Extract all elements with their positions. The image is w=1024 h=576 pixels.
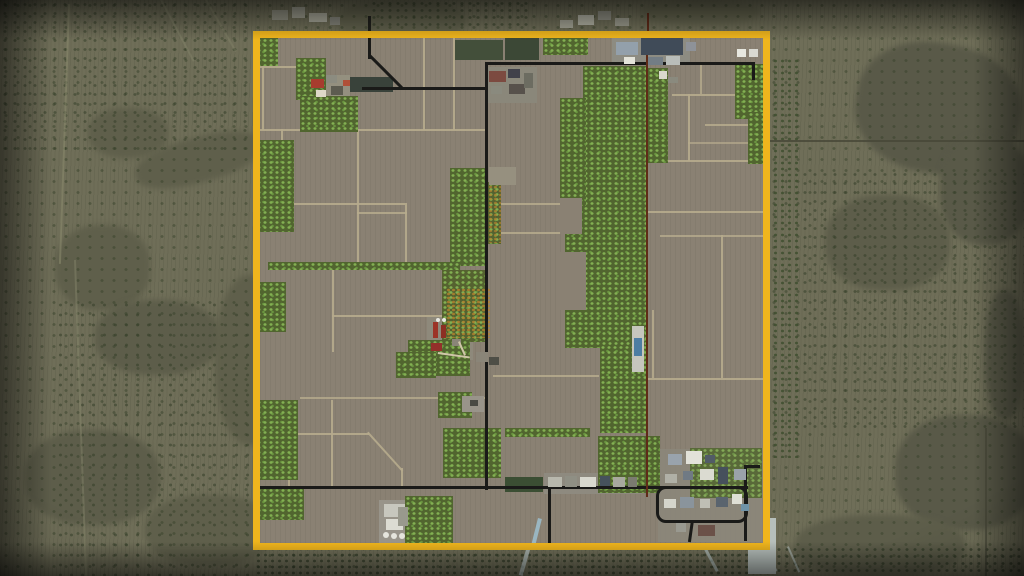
gravel-lot (489, 167, 516, 185)
railway-stub-north (647, 13, 649, 32)
field-line (260, 129, 487, 131)
forest (748, 112, 763, 164)
dark-crop-field (455, 40, 503, 60)
building (683, 471, 693, 480)
forest (443, 428, 501, 478)
forest (260, 140, 294, 232)
building (330, 17, 340, 25)
windmill (659, 71, 667, 79)
road (362, 87, 488, 90)
forest (560, 98, 586, 208)
autumn-trees (488, 185, 501, 243)
building (641, 38, 683, 55)
forest (648, 68, 668, 163)
field-line (262, 66, 264, 130)
forest (583, 66, 647, 206)
building (560, 20, 573, 28)
building (732, 494, 742, 504)
building (668, 77, 678, 83)
building (716, 497, 728, 507)
road-main-vertical (485, 62, 488, 490)
road (487, 62, 755, 65)
field-track (770, 140, 1024, 142)
building (600, 476, 610, 486)
building (524, 73, 533, 88)
silo (391, 533, 397, 539)
field-line (652, 310, 654, 378)
building (665, 474, 677, 483)
dark-crop-field (505, 38, 539, 60)
building (272, 10, 288, 20)
forest (260, 488, 304, 520)
field-line (288, 433, 369, 435)
forest (300, 96, 358, 132)
field-line (283, 203, 405, 205)
building (686, 42, 696, 51)
field-line (660, 235, 763, 237)
road (752, 62, 755, 80)
field-notch (560, 198, 582, 234)
tree-cluster (255, 546, 505, 576)
forest (260, 282, 286, 332)
pond-small (741, 504, 749, 511)
building (666, 56, 680, 65)
dark-crop-field (505, 477, 543, 492)
barn-red (431, 343, 442, 351)
building (700, 469, 714, 480)
forest (260, 400, 298, 480)
tree-cluster (800, 170, 1024, 430)
map-viewport (0, 0, 1024, 576)
building (705, 455, 715, 463)
building (508, 69, 520, 78)
forest (450, 168, 486, 266)
field-line (331, 400, 333, 487)
building (311, 79, 324, 88)
building (580, 477, 596, 487)
building (734, 469, 746, 480)
road-stub-north (368, 16, 371, 32)
field-line (648, 211, 763, 213)
road (744, 465, 760, 468)
building (489, 357, 499, 365)
tree-cluster (0, 0, 250, 150)
building (489, 71, 506, 82)
field-line (357, 212, 407, 214)
building (509, 84, 525, 94)
building (578, 15, 594, 25)
barn-red (433, 322, 438, 338)
road (548, 488, 551, 543)
railway (646, 38, 648, 497)
building (316, 90, 326, 97)
building (718, 467, 728, 484)
barn-red (441, 325, 446, 338)
forest (396, 352, 436, 378)
field-line (401, 468, 403, 487)
playable-map-area[interactable] (260, 38, 763, 543)
building (648, 57, 663, 65)
building (680, 497, 694, 508)
hedge-row (268, 262, 460, 270)
building (476, 352, 488, 362)
building (292, 7, 305, 18)
hedge-row (505, 428, 590, 437)
building (326, 75, 337, 83)
silo (436, 318, 440, 322)
tree-line-east-of-frame (772, 58, 798, 458)
building (343, 80, 350, 86)
building (737, 49, 746, 57)
forest (405, 496, 453, 543)
building (613, 477, 625, 487)
field-line (357, 129, 359, 266)
building (628, 477, 637, 487)
field-line (493, 375, 599, 377)
building (749, 49, 758, 57)
field-notch (560, 252, 586, 310)
building (470, 400, 478, 406)
silo (383, 532, 389, 538)
field-track (985, 428, 987, 576)
building (700, 499, 710, 508)
building (698, 525, 715, 536)
building (624, 57, 635, 64)
building (331, 86, 343, 95)
forest (260, 38, 278, 66)
field-line (423, 38, 425, 130)
field-line (700, 63, 702, 94)
forest (543, 38, 588, 55)
building (686, 451, 702, 464)
field-line (332, 268, 334, 352)
field-line (721, 235, 723, 378)
building (491, 86, 502, 94)
building (398, 507, 408, 526)
silo (442, 318, 446, 322)
building (309, 13, 327, 22)
forest (735, 64, 763, 119)
building (668, 454, 682, 465)
tree-cluster (370, 0, 530, 30)
building (664, 499, 676, 508)
field-line (648, 378, 763, 380)
building (548, 477, 562, 487)
building (616, 42, 638, 55)
pool-water (634, 338, 642, 356)
building (676, 523, 686, 532)
silo (399, 533, 405, 539)
tree-cluster (505, 546, 770, 576)
field-line (688, 94, 690, 161)
building (598, 11, 611, 20)
building (565, 476, 577, 487)
building (615, 18, 629, 26)
